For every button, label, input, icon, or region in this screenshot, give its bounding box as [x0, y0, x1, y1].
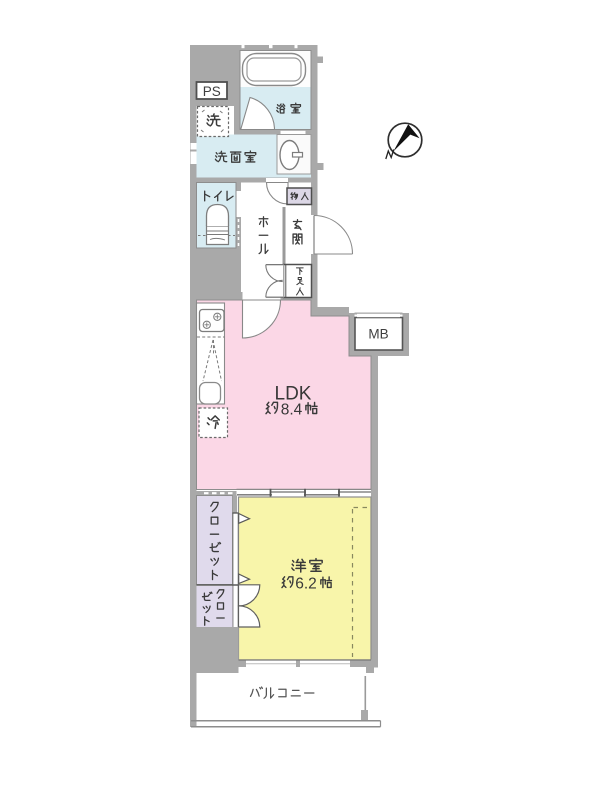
svg-text:6.2: 6.2: [295, 575, 317, 592]
svg-text:PS: PS: [203, 84, 221, 99]
svg-text:MB: MB: [368, 327, 388, 342]
svg-text:8.4: 8.4: [281, 401, 303, 418]
